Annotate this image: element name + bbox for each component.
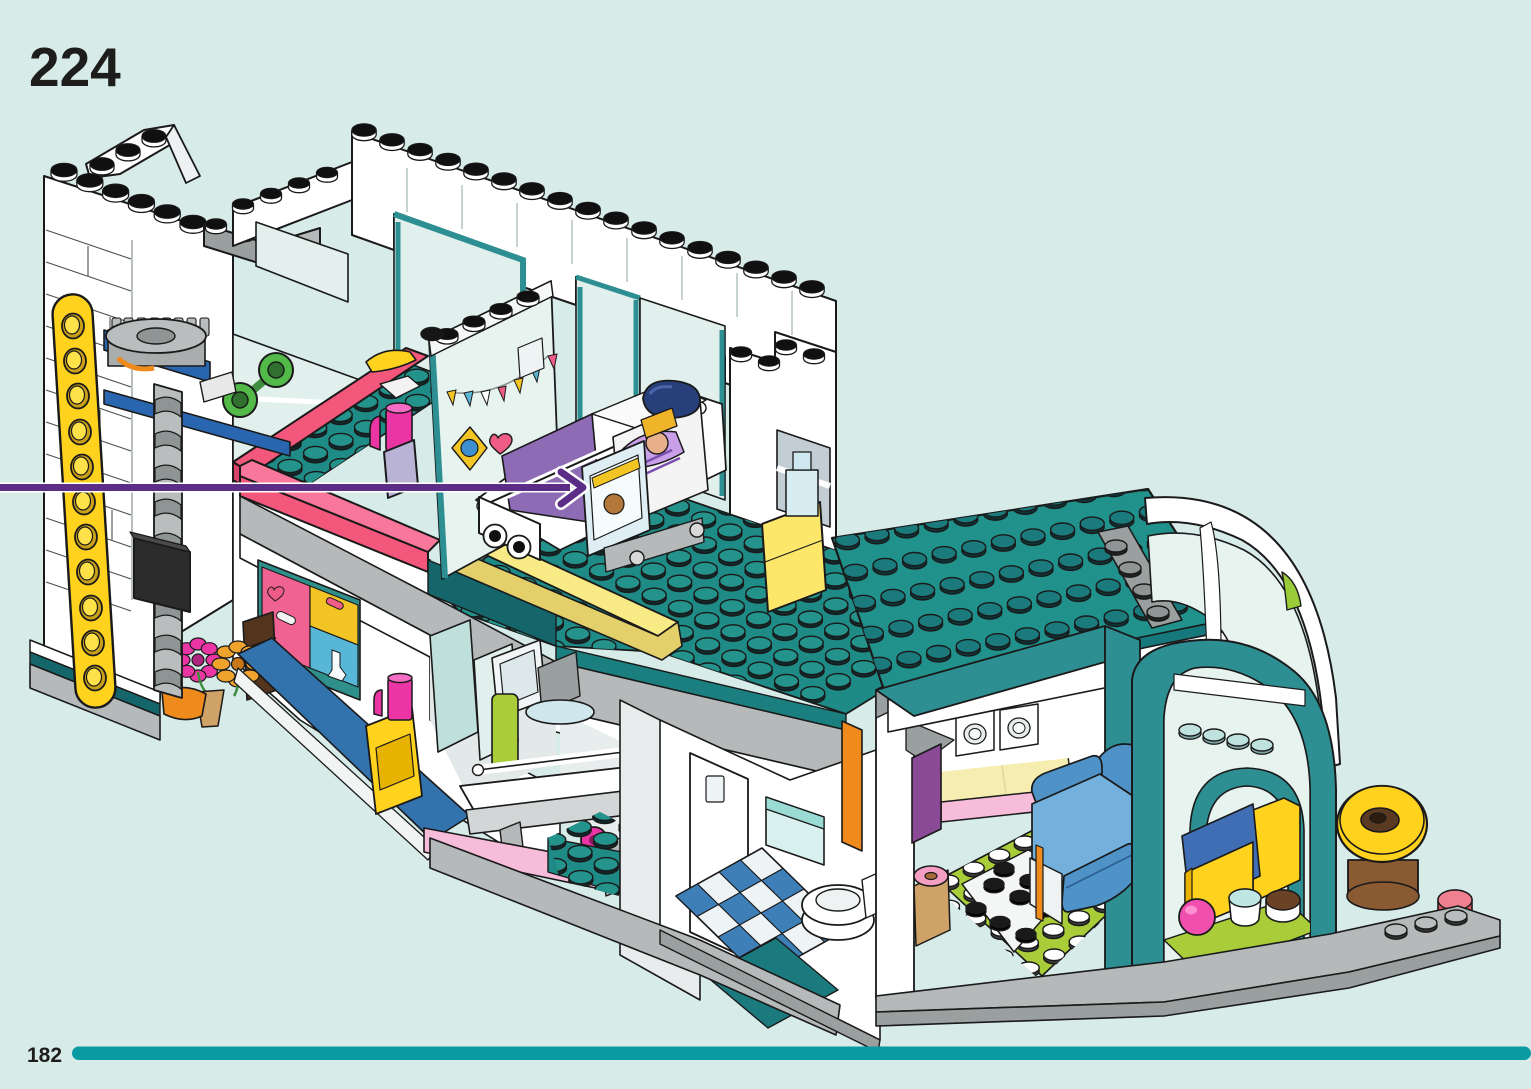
svg-text:224: 224 [29, 36, 121, 98]
svg-text:182: 182 [27, 1044, 62, 1067]
